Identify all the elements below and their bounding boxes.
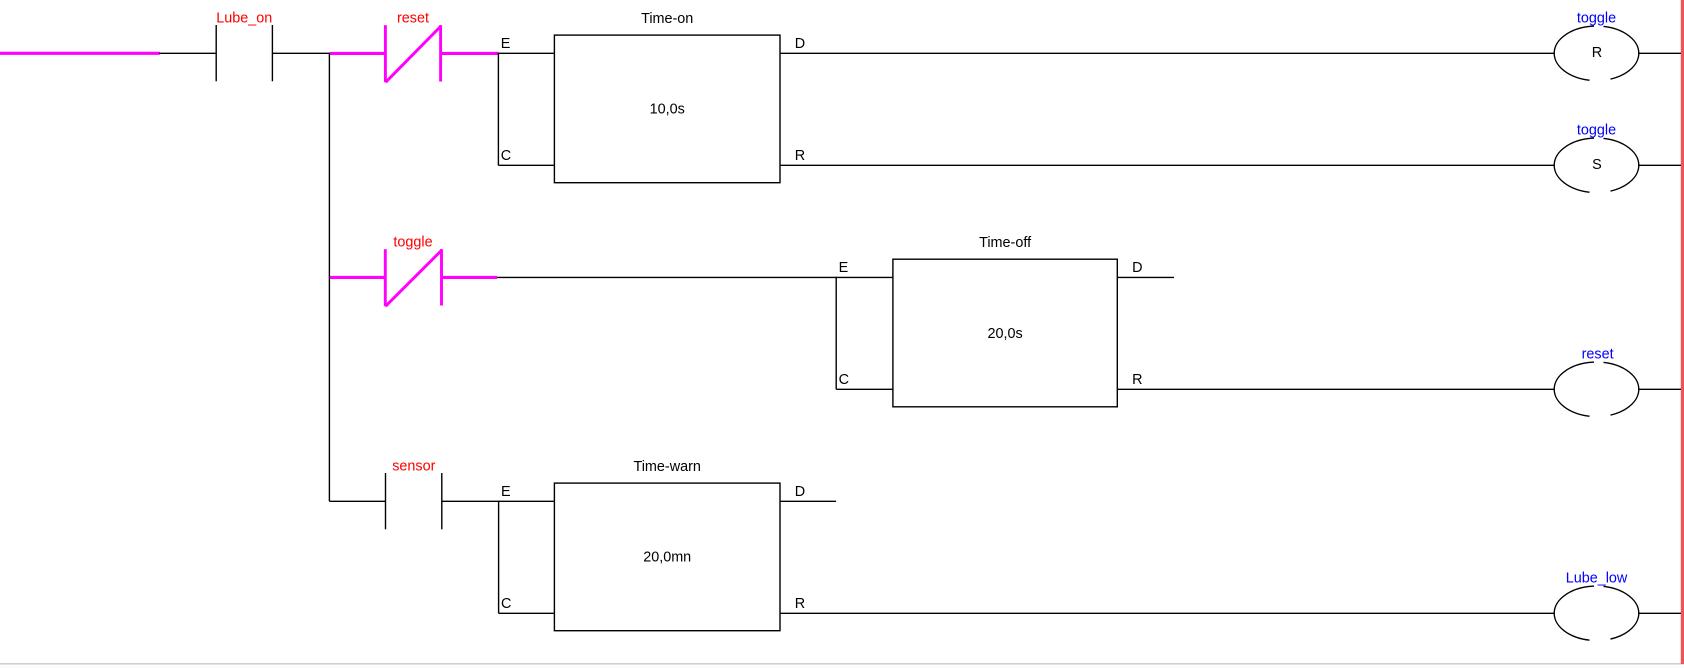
svg-text:10,0s: 10,0s [650, 102, 685, 118]
svg-text:Lube_low: Lube_low [1566, 570, 1628, 586]
svg-text:reset: reset [397, 10, 429, 26]
svg-text:C: C [501, 148, 511, 164]
svg-text:E: E [839, 260, 849, 276]
svg-text:Lube_on: Lube_on [216, 10, 272, 26]
svg-text:toggle: toggle [1577, 122, 1616, 138]
svg-text:sensor: sensor [392, 458, 435, 474]
svg-text:D: D [795, 484, 805, 500]
svg-text:toggle: toggle [1577, 10, 1616, 26]
svg-text:C: C [501, 596, 511, 612]
svg-text:R: R [1592, 45, 1602, 61]
svg-text:S: S [1592, 157, 1602, 173]
svg-text:D: D [1132, 260, 1142, 276]
svg-text:D: D [795, 36, 805, 52]
svg-text:Time-warn: Time-warn [633, 459, 700, 475]
svg-text:R: R [1132, 372, 1142, 388]
svg-text:Time-on: Time-on [641, 11, 693, 27]
svg-text:C: C [839, 372, 849, 388]
svg-text:R: R [795, 596, 805, 612]
svg-text:20,0mn: 20,0mn [643, 550, 691, 566]
svg-text:reset: reset [1582, 346, 1614, 362]
svg-text:toggle: toggle [393, 234, 432, 250]
svg-text:R: R [795, 148, 805, 164]
svg-text:20,0s: 20,0s [987, 326, 1022, 342]
svg-text:E: E [501, 484, 511, 500]
svg-text:E: E [501, 36, 511, 52]
svg-text:Time-off: Time-off [979, 235, 1032, 251]
